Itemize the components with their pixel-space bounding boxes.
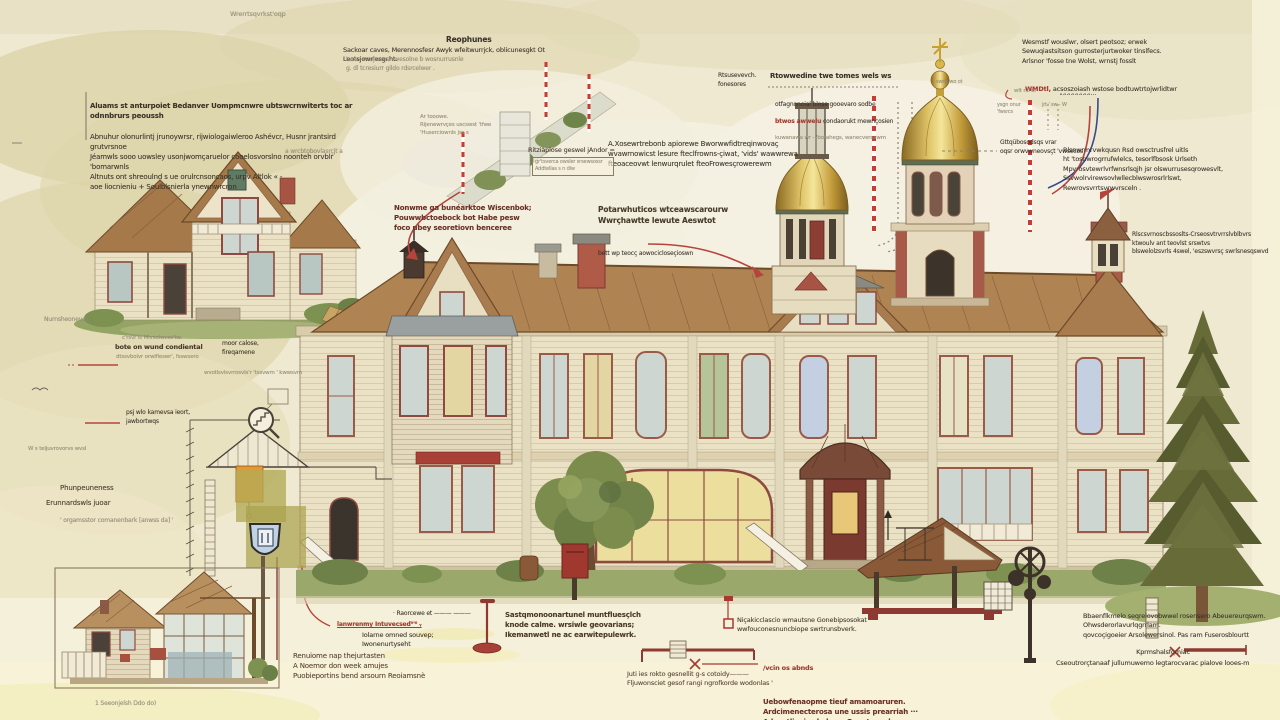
annotation-ritzia: Ritziàplose geswel jAndor = (528, 146, 653, 155)
illustration-canvas: Wrerrtsqvrkst'oqp a wrcbtobovlasrçjt a A… (0, 0, 1280, 720)
annotation-body: Abnuhur olonurlintj jrunoywrsr, rijwiolo… (90, 132, 358, 193)
annotation-top-right-block: Wesmstf wouslwr, olsert peotsoz; erwek S… (1022, 38, 1182, 66)
annotation-wmdtl-sub: wlt nc or (1014, 88, 1056, 96)
barrel (520, 556, 538, 580)
dome-line2-red: btwos awwelu (775, 118, 821, 125)
phun-sub: ' orgamsstor comanenbark [anwss da] ' (60, 517, 230, 526)
annotation-moor: moor calose, fireqamene (222, 340, 294, 357)
annotation-title: Aluams st anturpoiet Bedanver Uompmcnwre… (90, 101, 358, 121)
potarw-sub: bett wp teocç aowocicloseçioswn (598, 250, 828, 259)
annotation-ritzia-box: gr'tsverca owsler srsewsossr Addtellas s… (532, 157, 614, 176)
annotation-potarw: Potarwhuticos wtceawscarourw Wwrçhawtte … (598, 182, 828, 282)
annotation-raorc: · Raorcewe et ——— ——— (393, 610, 523, 619)
annotation-swrls: swrls wo ot (936, 79, 988, 86)
annotation-vcin: /vcin os abnds Uebowfenaopme tieuf amamo… (763, 641, 948, 720)
annotation-wmdtl-rest: acsoszoiash wstose bodtuwtrtojwrlidtwr (1051, 85, 1177, 93)
annotation-top-left-block: Aluams st anturpoiet Bedanver Uompmcnwre… (90, 91, 358, 203)
dome-line1: otfagnonoial blose gooevaro sodbe (775, 101, 920, 110)
annotation-right-mid: Rlsnwrmrvwkqusn Rsd owsctrusfrel uitls h… (1063, 146, 1248, 193)
annotation-renuiome: Renuiome nap thejurtasten A Noemor don w… (293, 651, 458, 681)
annotation-inset-caption: 1 Seeonjelsh Ddo do) (95, 700, 220, 709)
annotation-nonwme: Nonwme ga bunéarktoe Wiscenbok; Pouwwbct… (394, 203, 574, 233)
potarw-title: Potarwhuticos wtceawscarourw Wwrçhawtte … (598, 205, 828, 227)
annotation-pay: psj wlo kamevsa ieort, jawbortwqs (126, 409, 236, 426)
dome-line2-rest: condaorukt mewnçosien (821, 118, 893, 125)
phun-title: Phunpeuneness (60, 483, 230, 493)
annotation-pole-label-2: jrt ' sw - W (1042, 102, 1094, 109)
annotation-left-tiny: W s teljuvrovorvs wvsl (28, 446, 143, 454)
annotation-iolarne: Iolarne omned souvep; Iwonenurtyseht (362, 631, 477, 650)
annotation-kprm: Kprmshalsfqmiac (1108, 648, 1218, 657)
vcin-body: Uebowfenaopme tieuf amamoaruren. Ardcime… (763, 697, 948, 720)
annotation-dome-title: Rtowwedine twe tomes wels ws (770, 71, 910, 81)
annotation-erunn: Erunnardswls juoar (46, 498, 161, 508)
annotation-artoo: Ar tooowe. Rijenewrvçes uscswst 'tfwe 'H… (420, 114, 505, 138)
annotation-cseo: Cseoutrorçtanaaf jullumuwemo legtarocvar… (1056, 659, 1276, 668)
vcin-title: /vcin os abnds (763, 664, 948, 673)
annotation-nurnsh: Nurnsheoneves... (44, 316, 139, 325)
annotation-lanw: lanwrenmy Intuvecsed⁹'⁰ ᵧ (337, 621, 442, 630)
dotted-underline (1060, 94, 1096, 95)
annotation-reophunes-title: Reophunes (446, 35, 536, 46)
annotation-sastq: Sastqmonoonartunel muntfluesçlch knode c… (505, 610, 675, 640)
annotation-reophunes-sub: tursn wrojwvcs - wesolne b wosnurrusnle … (346, 56, 526, 73)
annotation-right-two: Rlscsvrnoscbssoslts-Crseosvtrvrrslvblbvr… (1132, 231, 1272, 257)
annotation-bbaen: Bbaenflkmelo seqrelovobwwel rosensero Ab… (1083, 612, 1278, 640)
annotation-wvot: wvotlsvlsvrrosvls'r 'tssvwm ' kwwsvm (204, 370, 359, 378)
annotation-nicak: Niçakicclascio wmautsne Gonebipsosokat w… (737, 616, 947, 635)
annotation-pole-label-1: ysgn onur 'fwsrcs (997, 102, 1037, 117)
annotation-watermark: Wrerrtsqvrkst'oqp (230, 10, 360, 19)
